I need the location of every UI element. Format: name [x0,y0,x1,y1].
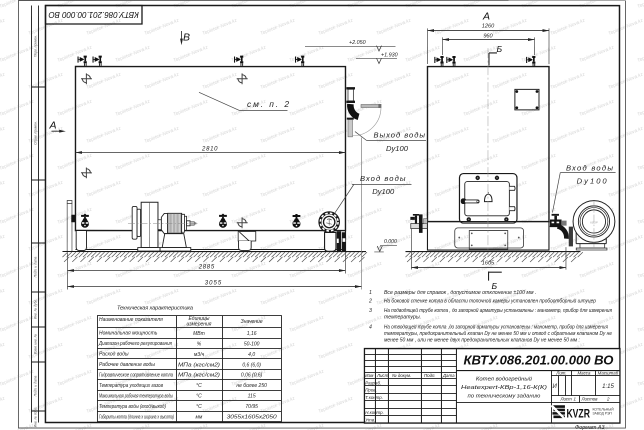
svg-text:Перв. примен.: Перв. примен. [34,35,38,57]
svg-text:Н.контр.: Н.контр. [365,410,384,415]
svg-text:Dy100: Dy100 [386,144,409,153]
svg-text:В: В [183,31,190,43]
svg-text:Техническая характеристика: Техническая характеристика [117,306,193,312]
svg-text:Лист: Лист [376,373,389,378]
svg-text:Все размеры для справок , допу: Все размеры для справок , допустимое отк… [384,290,536,296]
svg-text:МПа (кгс/см2): МПа (кгс/см2) [178,373,220,379]
svg-text:0,6 (6,0): 0,6 (6,0) [242,362,261,368]
svg-text:1,16: 1,16 [247,331,257,337]
svg-text:Подп.: Подп. [424,373,436,378]
svg-text:МВт: МВт [193,331,205,337]
svg-text:2810: 2810 [201,146,218,152]
svg-text:Выход воды: Выход воды [373,131,425,140]
svg-text:Значение: Значение [241,319,263,325]
svg-text:не более 250: не более 250 [236,383,267,389]
svg-text:Максимальная рабочая температу: Максимальная рабочая температура воды [99,393,173,399]
svg-text:А: А [48,119,56,131]
svg-text:КВЗР: КВЗР [590,220,598,224]
svg-text:+1.930: +1.930 [381,53,398,59]
svg-text:Вход воды: Вход воды [360,174,406,183]
svg-text:°С: °С [196,394,202,400]
svg-text:Дата: Дата [442,373,455,378]
svg-text:Диапазон рабочего регулировани: Диапазон рабочего регулирования [98,341,172,347]
svg-text:температуры.: температуры. [384,315,421,321]
svg-text:Листов: Листов [580,397,598,402]
svg-text:Подп. и дата: Подп. и дата [34,257,38,278]
svg-text:KVZR: KVZR [566,406,590,420]
svg-text:50-100: 50-100 [244,341,260,347]
svg-text:Лит.: Лит. [555,370,566,375]
svg-text:Номинальная мощность: Номинальная мощность [99,331,158,337]
svg-text:№ докум.: № докум. [392,373,411,378]
svg-text:Котел водогрейный: Котел водогрейный [476,376,533,383]
svg-text:Dy100: Dy100 [577,176,608,185]
svg-text:Формат А3: Формат А3 [575,425,605,430]
svg-text:1: 1 [369,290,372,296]
svg-text:3: 3 [369,308,372,314]
svg-text:Габариты котла (длинна х ширин: Габариты котла (длинна х ширина х высота… [99,414,174,420]
svg-text:2885: 2885 [198,264,215,270]
svg-text:115: 115 [248,394,256,400]
svg-text:Разраб.: Разраб. [365,380,381,385]
svg-text:Инв. № подл.: Инв. № подл. [34,407,38,428]
svg-text:мм: мм [196,415,203,421]
svg-text:Гидравлическое сопротивление к: Гидравлическое сопротивление котла [99,372,173,378]
svg-text:3055: 3055 [205,280,222,286]
svg-text:А: А [482,11,490,23]
svg-text:м3/ч: м3/ч [194,352,205,358]
svg-text:по техническому заданию: по техническому заданию [468,394,541,400]
svg-text:измерения: измерения [186,322,211,328]
svg-text:3055х1605х2050: 3055х1605х2050 [227,415,277,421]
svg-text:Расход воды: Расход воды [99,352,129,358]
svg-text:Рабочее давление воды: Рабочее давление воды [99,362,155,368]
svg-text:Heatexpert-КВр-1,16-К(К): Heatexpert-КВр-1,16-К(К) [461,385,547,391]
svg-text:Лист: Лист [559,397,572,402]
svg-text:На боковой стенке котла в обла: На боковой стенке котла в области топочн… [384,298,596,305]
svg-text:Справ. примен.: Справ. примен. [34,121,38,145]
svg-text:КВТУ.086.201.00.000 ВО: КВТУ.086.201.00.000 ВО [463,353,613,368]
svg-text:Подп. и дата: Подп. и дата [34,376,38,397]
svg-text:1605: 1605 [482,261,495,267]
svg-text:МПа (кгс/см2): МПа (кгс/см2) [178,362,220,368]
svg-text:1260: 1260 [482,24,495,30]
svg-text:ЗАВОД РЭП: ЗАВОД РЭП [592,412,612,416]
svg-text:На отводящей трубе котла ,до з: На отводящей трубе котла ,до запорной ар… [384,324,608,331]
svg-text:И: И [552,384,557,390]
svg-text:%: % [197,341,202,347]
svg-text:0.000: 0.000 [384,239,397,245]
svg-text:960: 960 [483,33,493,39]
svg-text:температуры, предохранительный: температуры, предохранительный клапан Dу… [384,330,612,337]
svg-text:Взам. инв. №: Взам. инв. № [34,333,38,354]
svg-text:1:15: 1:15 [602,384,614,390]
svg-text:менее 50 мм , или не менее дв: менее 50 мм , или не менее двух предохра… [384,338,581,344]
svg-text:2: 2 [368,299,372,305]
svg-text:Наименование показателя: Наименование показателя [99,317,163,323]
svg-text:Пров.: Пров. [365,388,377,393]
svg-text:Б: Б [496,44,502,54]
svg-text:0,06 (0,6): 0,06 (0,6) [241,373,263,379]
svg-text:Масса: Масса [577,370,591,375]
svg-text:Dy100: Dy100 [372,187,395,196]
svg-text:КВТУ.086.201.00.000 ВО: КВТУ.086.201.00.000 ВО [49,10,139,19]
svg-text:Утв.: Утв. [365,417,375,422]
svg-text:На подводящей трубе котла ,: На подводящей трубе котла , до запорной … [384,307,612,314]
svg-text:°С: °С [196,383,202,389]
svg-text:4,0: 4,0 [248,352,255,358]
svg-text:Масштаб: Масштаб [598,370,619,375]
svg-text:+2.050: +2.050 [349,40,366,46]
svg-text:Изм: Изм [365,373,373,378]
svg-text:°С: °С [196,404,202,410]
svg-text:Температура уходящих газов: Температура уходящих газов [99,383,163,389]
svg-text:Т.контр.: Т.контр. [365,395,383,400]
svg-text:70/95: 70/95 [245,404,258,410]
svg-text:4: 4 [369,325,372,331]
svg-text:2: 2 [606,397,610,402]
svg-text:Инв. № дубл.: Инв. № дубл. [34,299,38,319]
svg-text:Температура воды (вход/выход): Температура воды (вход/выход) [99,404,166,410]
